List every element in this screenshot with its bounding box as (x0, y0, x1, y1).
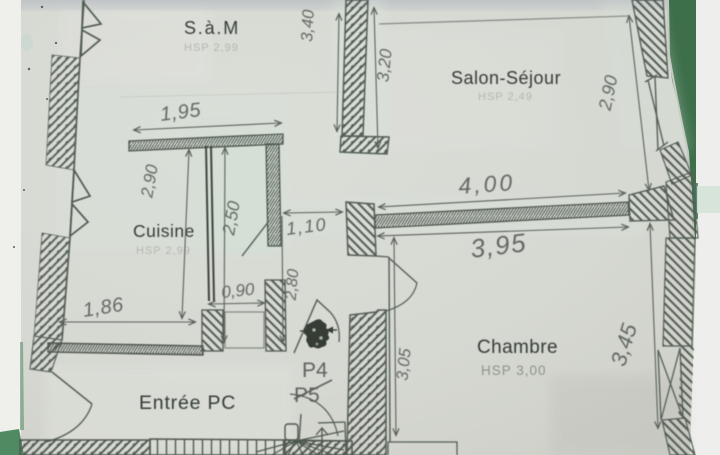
svg-text:3,05: 3,05 (393, 347, 414, 382)
svg-text:Salon-Séjour: Salon-Séjour (451, 68, 561, 88)
svg-text:2,80: 2,80 (283, 268, 303, 302)
svg-text:Chambre: Chambre (477, 337, 558, 358)
svg-text:S.à.M: S.à.M (184, 18, 240, 38)
svg-text:4,00: 4,00 (458, 169, 516, 199)
svg-text:HSP 2,99: HSP 2,99 (136, 245, 191, 257)
svg-text:HSP 2,49: HSP 2,49 (478, 91, 533, 103)
svg-text:3,20: 3,20 (373, 47, 395, 82)
svg-text:P4: P4 (302, 359, 328, 382)
svg-text:0,90: 0,90 (220, 280, 255, 302)
svg-text:HSP 3,00: HSP 3,00 (481, 363, 547, 378)
svg-text:Entrée PC: Entrée PC (139, 392, 236, 414)
svg-text:3,40: 3,40 (298, 8, 318, 42)
svg-text:HSP 2,99: HSP 2,99 (184, 42, 239, 54)
